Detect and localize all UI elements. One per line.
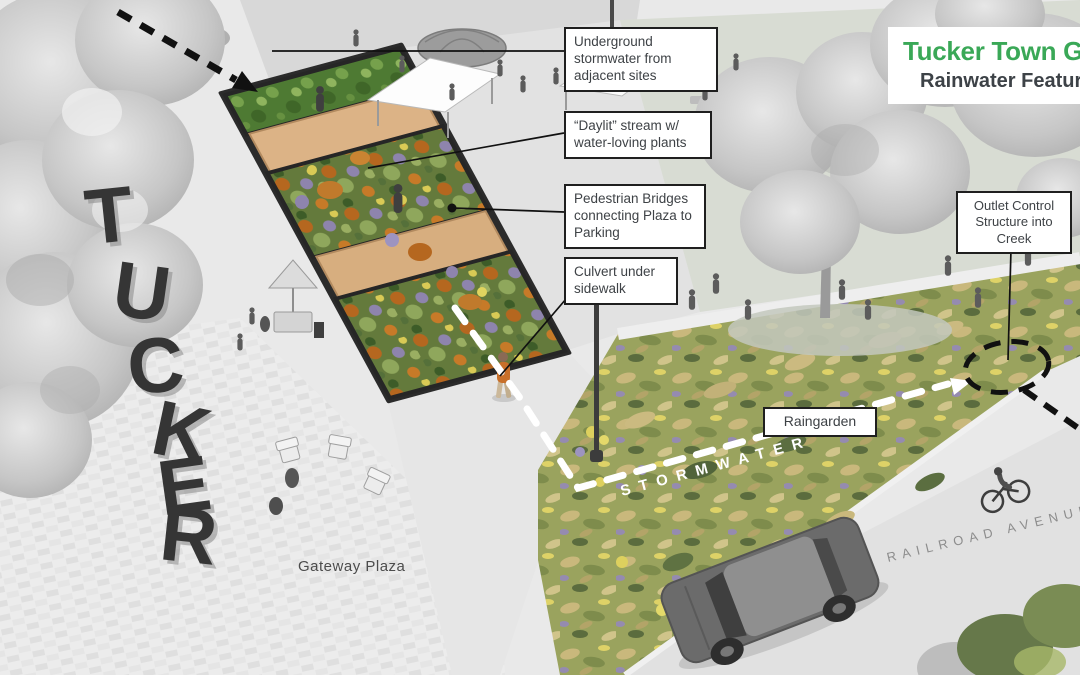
bridge-leader-dot: [448, 204, 457, 213]
title-card: Tucker Town Green Rainwater Features: [888, 27, 1080, 104]
gateway-plaza-label: Gateway Plaza: [298, 558, 405, 575]
callout-pedestrian-bridges: Pedestrian Bridges connecting Plaza to P…: [564, 184, 706, 249]
callout-raingarden: Raingarden: [763, 407, 877, 437]
rendering-canvas: T U C K E R T U C K E R: [0, 0, 1080, 675]
callout-outlet-control: Outlet Control Structure into Creek: [956, 191, 1072, 254]
callout-culvert: Culvert under sidewalk: [564, 257, 678, 305]
project-title: Tucker Town Green: [903, 36, 1080, 67]
sculpture-letter: R: [156, 488, 221, 581]
callout-underground-stormwater: Underground stormwater from adjacent sit…: [564, 27, 718, 92]
project-subtitle: Rainwater Features: [920, 70, 1080, 93]
callout-daylit-stream: “Daylit” stream w/ water-loving plants: [564, 111, 712, 159]
